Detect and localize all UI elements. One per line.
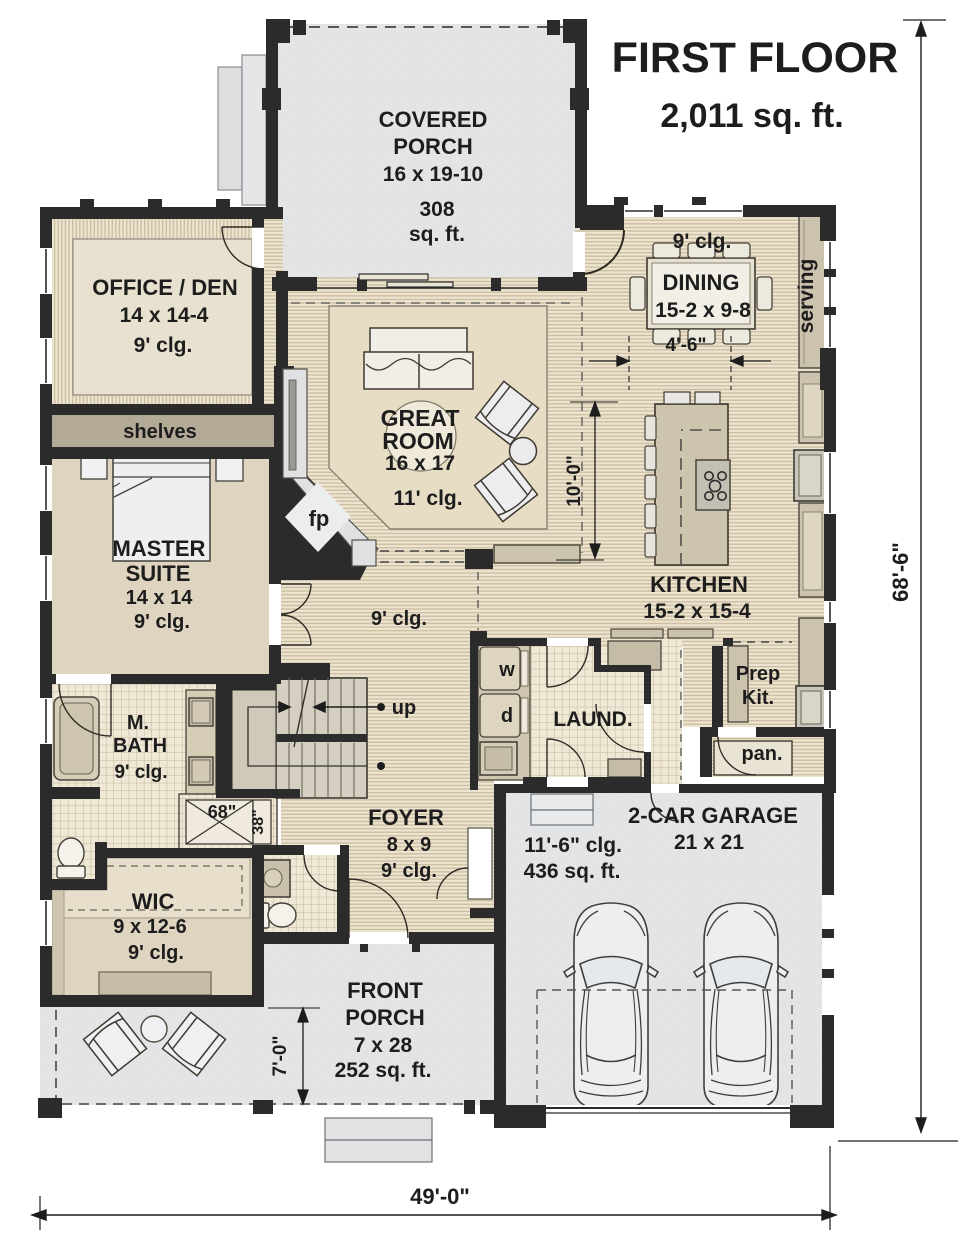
svg-text:9' clg.: 9' clg. [134, 611, 190, 633]
svg-text:7 x 28: 7 x 28 [354, 1034, 413, 1057]
svg-text:49'-0": 49'-0" [410, 1184, 470, 1209]
svg-text:shelves: shelves [123, 421, 196, 443]
svg-text:pan.: pan. [741, 743, 782, 765]
svg-text:9 x 12-6: 9 x 12-6 [113, 916, 186, 938]
svg-text:Kit.: Kit. [742, 687, 774, 709]
svg-text:11'-6" clg.: 11'-6" clg. [524, 834, 622, 857]
svg-text:Prep: Prep [736, 663, 780, 685]
svg-text:9' clg.: 9' clg. [114, 762, 167, 783]
svg-text:9' clg.: 9' clg. [381, 860, 437, 882]
svg-text:OFFICE / DEN: OFFICE / DEN [92, 275, 237, 300]
svg-text:14 x 14: 14 x 14 [126, 587, 194, 609]
svg-text:FOYER: FOYER [368, 805, 444, 830]
svg-text:ROOM: ROOM [382, 428, 454, 454]
svg-text:COVERED: COVERED [379, 107, 488, 132]
svg-text:15-2 x 15-4: 15-2 x 15-4 [643, 600, 751, 623]
svg-text:BATH: BATH [113, 735, 167, 757]
svg-text:KITCHEN: KITCHEN [650, 572, 748, 597]
svg-text:9' clg.: 9' clg. [673, 230, 732, 253]
svg-text:252 sq. ft.: 252 sq. ft. [335, 1059, 432, 1082]
svg-text:436 sq. ft.: 436 sq. ft. [524, 860, 621, 883]
svg-text:LAUND.: LAUND. [553, 708, 632, 731]
svg-text:PORCH: PORCH [345, 1005, 424, 1030]
svg-text:4'-6": 4'-6" [666, 335, 707, 356]
svg-text:fp: fp [309, 506, 330, 531]
svg-text:9' clg.: 9' clg. [134, 334, 193, 357]
svg-text:9' clg.: 9' clg. [128, 942, 184, 964]
svg-text:sq. ft.: sq. ft. [409, 223, 465, 246]
svg-text:FIRST FLOOR: FIRST FLOOR [612, 34, 899, 82]
svg-text:DINING: DINING [663, 270, 740, 295]
svg-text:FRONT: FRONT [347, 978, 423, 1003]
svg-text:w: w [498, 659, 515, 681]
svg-text:9' clg.: 9' clg. [371, 608, 427, 630]
svg-text:21 x 21: 21 x 21 [674, 831, 744, 854]
svg-text:serving: serving [795, 259, 818, 334]
svg-text:68'-6": 68'-6" [888, 542, 913, 602]
svg-text:308: 308 [419, 198, 454, 221]
svg-text:38": 38" [250, 809, 267, 834]
svg-text:2-CAR GARAGE: 2-CAR GARAGE [628, 803, 798, 828]
svg-text:2,011 sq. ft.: 2,011 sq. ft. [660, 97, 843, 135]
svg-text:7'-0": 7'-0" [270, 1036, 291, 1077]
svg-text:PORCH: PORCH [393, 134, 472, 159]
svg-text:14 x 14-4: 14 x 14-4 [120, 304, 209, 327]
svg-text:68": 68" [208, 802, 237, 822]
svg-text:10'-0": 10'-0" [564, 455, 585, 507]
svg-text:15-2 x 9-8: 15-2 x 9-8 [655, 299, 751, 322]
svg-text:up: up [392, 697, 416, 719]
svg-text:16 x 19-10: 16 x 19-10 [383, 163, 483, 186]
svg-text:SUITE: SUITE [126, 561, 191, 586]
svg-text:MASTER: MASTER [113, 536, 206, 561]
svg-text:WIC: WIC [132, 889, 175, 914]
svg-text:8 x 9: 8 x 9 [387, 834, 431, 856]
svg-text:M.: M. [127, 712, 149, 734]
svg-text:16 x 17: 16 x 17 [385, 452, 455, 475]
svg-text:11' clg.: 11' clg. [393, 487, 462, 510]
svg-text:d: d [501, 705, 513, 727]
